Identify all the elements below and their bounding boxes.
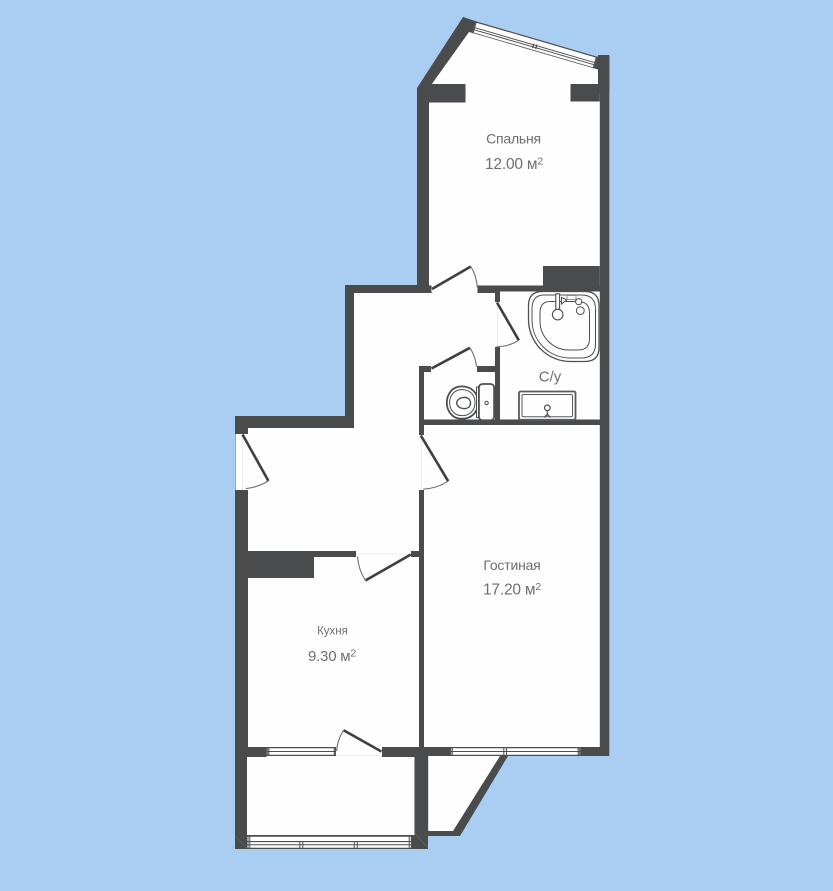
svg-text:17.20 м2: 17.20 м2 [483,581,541,599]
svg-text:9.30 м2: 9.30 м2 [308,648,356,666]
svg-text:Спальня: Спальня [486,131,541,147]
svg-text:12.00 м2: 12.00 м2 [485,156,543,174]
svg-text:Гостиная: Гостиная [483,557,540,573]
svg-text:С/у: С/у [539,369,562,386]
svg-text:Кухня: Кухня [317,626,348,638]
